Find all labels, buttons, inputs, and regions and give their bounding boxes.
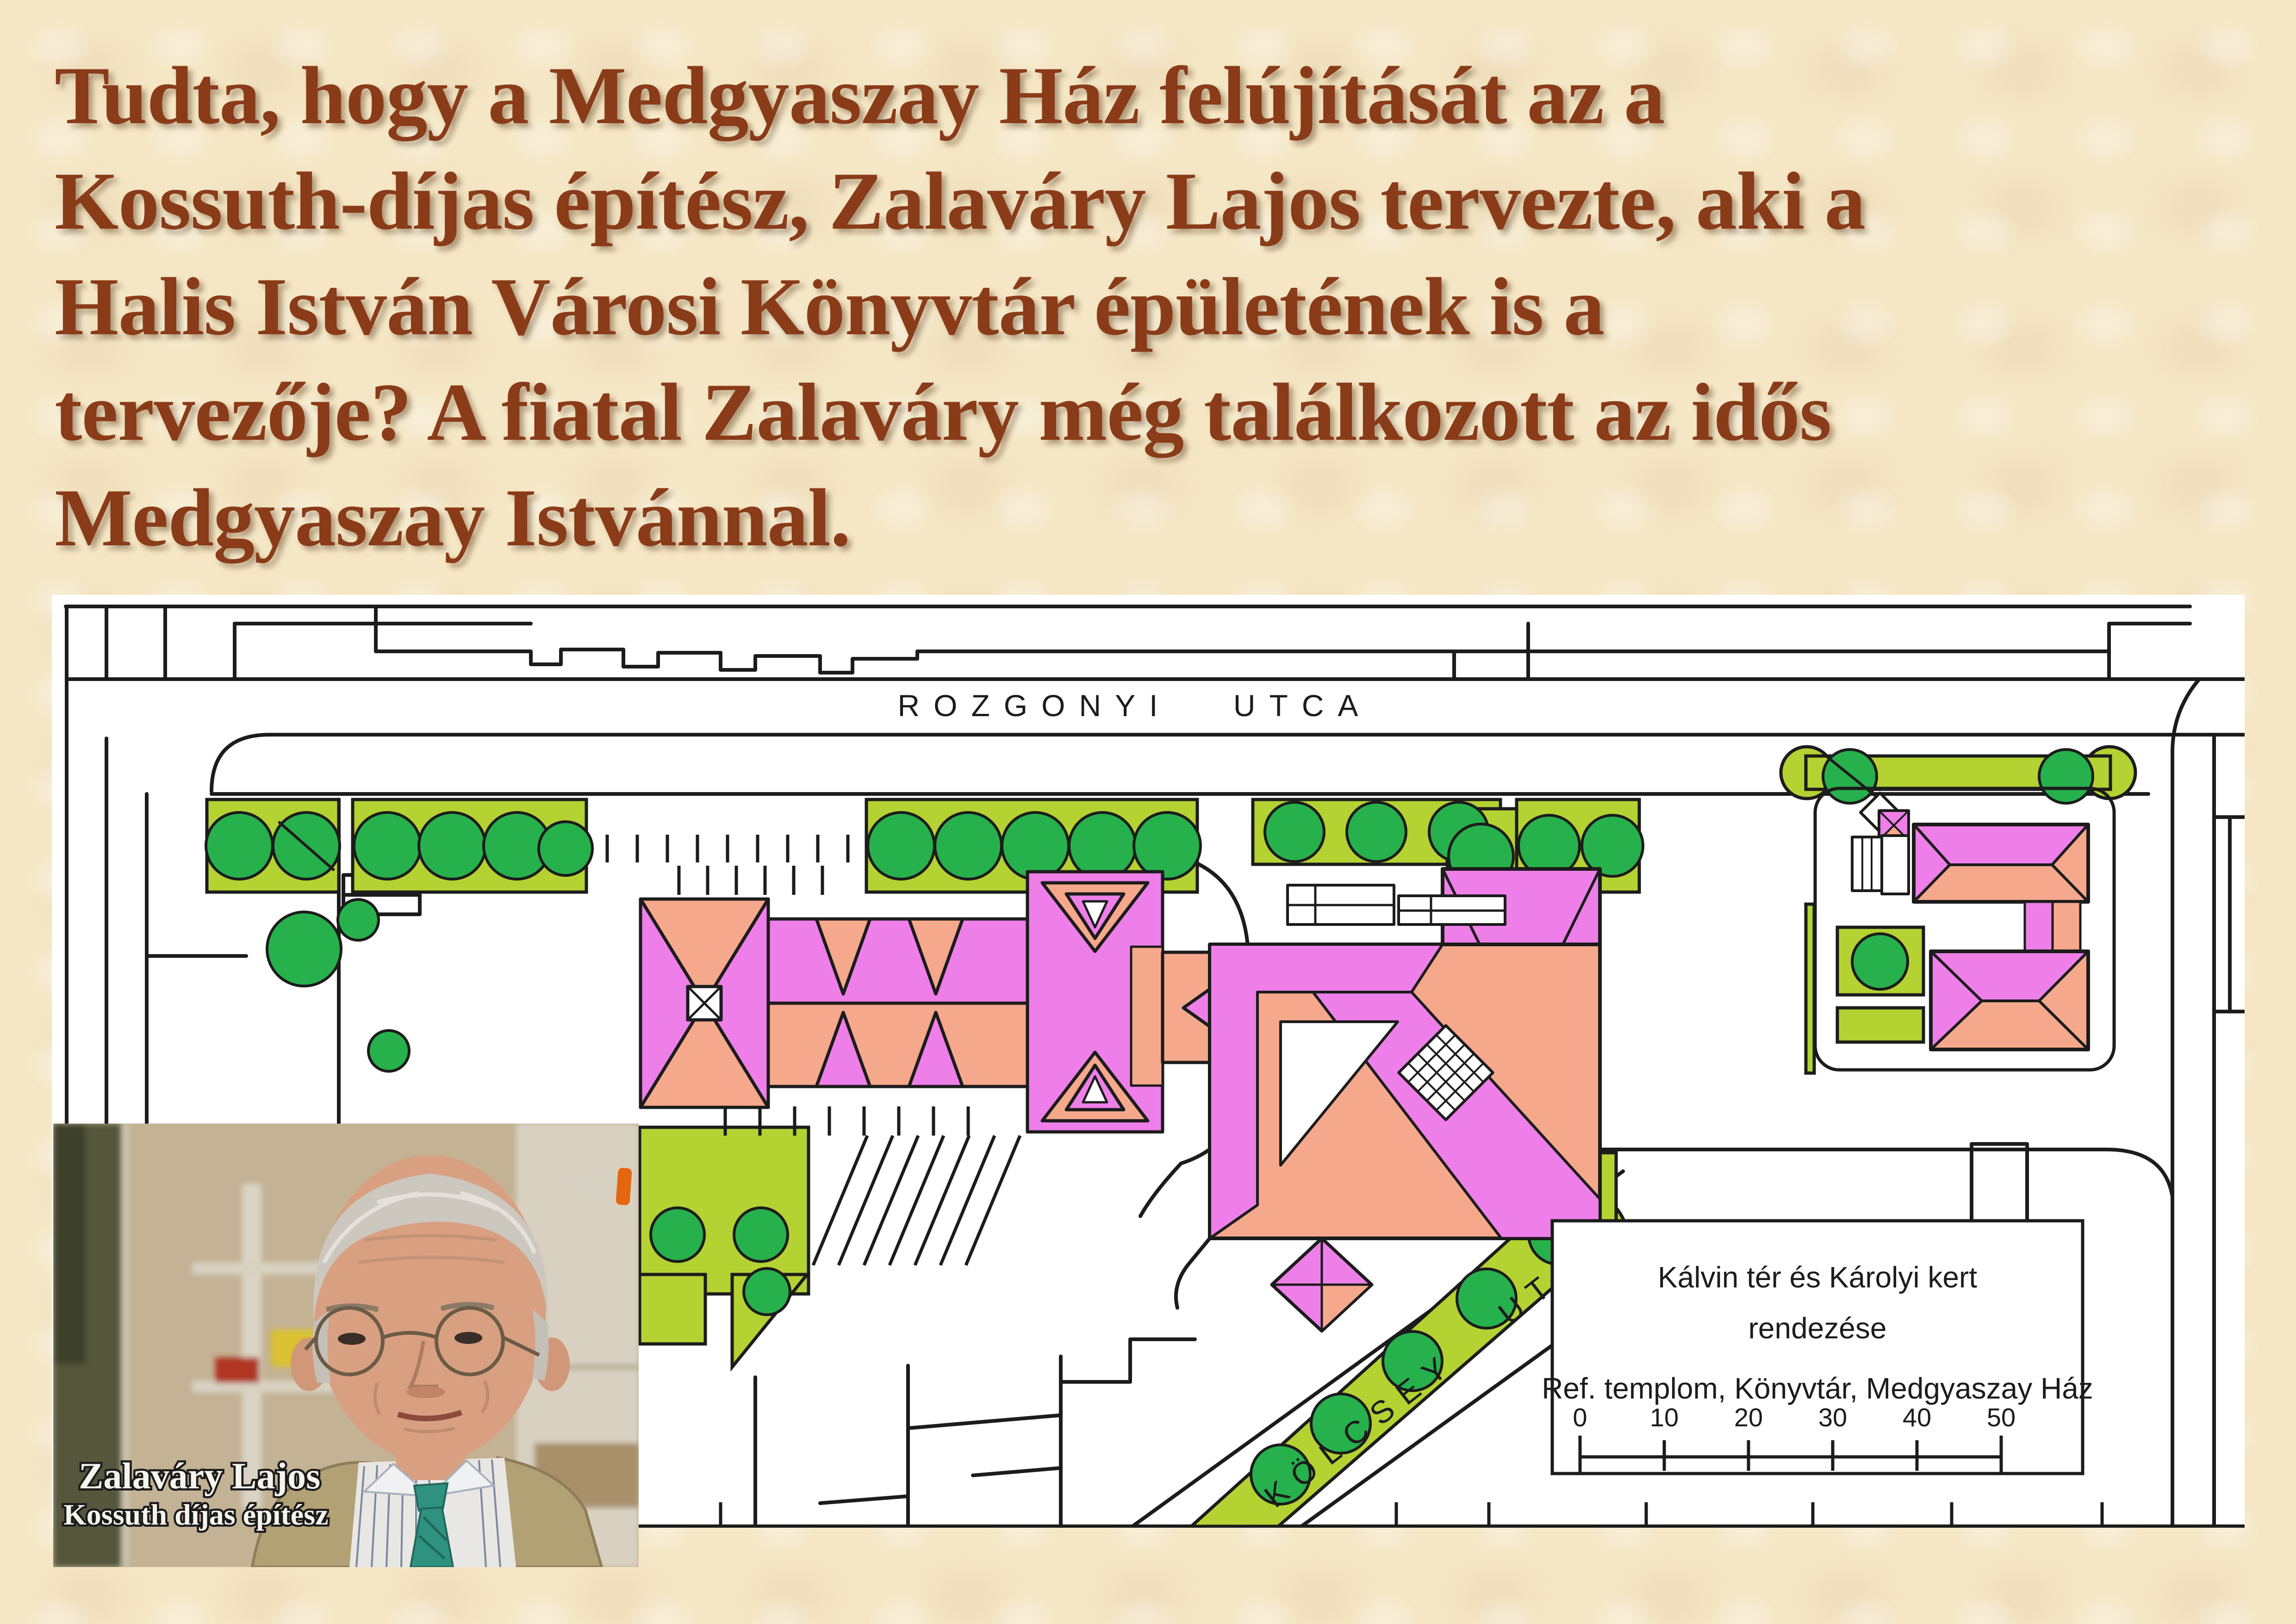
legend-title-line-2: rendezése [1748,1312,1887,1345]
scale-label-30: 30 [1818,1403,1847,1432]
scale-label-20: 20 [1734,1403,1763,1432]
title-line-5: Medgyaszay Istvánnal. [55,465,2248,570]
title-line-3: Halis István Városi Könyvtár épületének … [55,254,2248,359]
map-legend: Kálvin tér és Károlyi kert rendezése Ref… [1542,1221,2093,1474]
title-line-1: Tudta, hogy a Medgyaszay Ház felújítását… [55,43,2248,148]
scale-label-0: 0 [1573,1403,1587,1432]
legend-title-line-3: Ref. templom, Könyvtár, Medgyaszay Ház [1542,1372,2093,1405]
title-line-4: tervezője? A fiatal Zalaváry még találko… [55,359,2248,465]
portrait-photo: m2 Zalaváry Lajos Kossuth díjas építész [53,1124,639,1567]
page-title: Tudta, hogy a Medgyaszay Ház felújítását… [55,43,2248,570]
m2-logo-flame [616,1168,632,1206]
caption-name: Zalaváry Lajos [79,1456,320,1497]
m2-logo-text: m2 [572,1170,616,1204]
scale-label-50: 50 [1987,1403,2016,1432]
portrait-drawing: m2 Zalaváry Lajos Kossuth díjas építész [53,1124,639,1567]
photo-captions: Zalaváry Lajos Kossuth díjas építész [63,1456,329,1531]
scale-label-40: 40 [1903,1403,1931,1432]
m2-channel-logo: m2 [572,1168,632,1206]
title-line-2: Kossuth-díjas építész, Zalaváry Lajos te… [55,148,2248,254]
rozgonyi-street-label: ROZGONYI UTCA [897,688,1372,723]
caption-role: Kossuth díjas építész [63,1498,329,1531]
slide: Tudta, hogy a Medgyaszay Ház felújítását… [0,0,2296,1624]
legend-title-line-1: Kálvin tér és Károlyi kert [1658,1261,1977,1294]
scale-label-10: 10 [1650,1403,1679,1432]
